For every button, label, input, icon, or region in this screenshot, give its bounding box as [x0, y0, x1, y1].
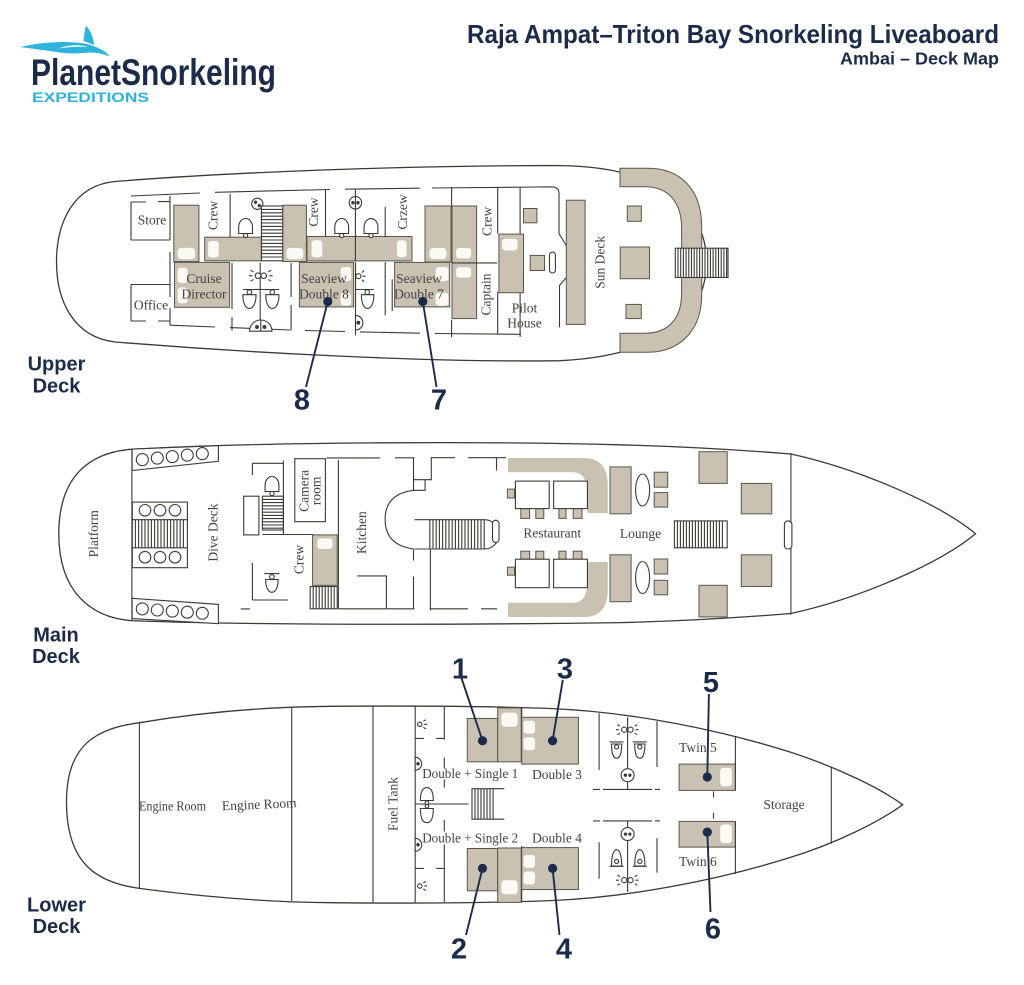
- svg-text:Twin 5: Twin 5: [679, 740, 717, 755]
- svg-text:Double 3: Double 3: [532, 767, 582, 782]
- svg-text:Platform: Platform: [86, 510, 101, 558]
- svg-text:Office: Office: [134, 298, 168, 313]
- svg-text:Crew: Crew: [205, 201, 220, 230]
- svg-text:Deck: Deck: [33, 916, 82, 938]
- svg-text:Crew: Crew: [306, 197, 321, 226]
- svg-text:Raja Ampat–Triton Bay Snorkeli: Raja Ampat–Triton Bay Snorkeling Liveabo…: [467, 19, 999, 49]
- svg-text:3: 3: [557, 654, 573, 686]
- svg-text:2: 2: [451, 934, 467, 966]
- svg-text:Deck: Deck: [33, 376, 82, 398]
- svg-text:Seaview: Seaview: [396, 271, 442, 286]
- svg-text:Main: Main: [33, 625, 79, 647]
- svg-text:5: 5: [703, 667, 719, 699]
- svg-text:Cruise: Cruise: [186, 271, 221, 286]
- svg-text:Double + Single 2: Double + Single 2: [422, 830, 518, 845]
- svg-text:Store: Store: [138, 213, 167, 228]
- svg-text:Ambai – Deck Map: Ambai – Deck Map: [840, 49, 999, 69]
- svg-text:House: House: [507, 316, 542, 331]
- svg-text:Lounge: Lounge: [620, 526, 661, 541]
- svg-text:7: 7: [431, 385, 447, 417]
- svg-text:EXPEDITIONS: EXPEDITIONS: [32, 90, 149, 105]
- svg-text:Twin 6: Twin 6: [679, 854, 717, 869]
- svg-text:Pilot: Pilot: [512, 301, 538, 316]
- svg-text:Restaurant: Restaurant: [523, 526, 581, 541]
- svg-text:4: 4: [556, 934, 572, 966]
- svg-text:Sun Deck: Sun Deck: [593, 236, 608, 289]
- svg-text:Kitchen: Kitchen: [354, 511, 369, 554]
- svg-text:Storage: Storage: [763, 797, 804, 812]
- svg-text:Deck: Deck: [32, 646, 81, 668]
- svg-text:Double 4: Double 4: [532, 830, 582, 845]
- svg-text:Dive Deck: Dive Deck: [205, 503, 220, 561]
- svg-text:1: 1: [452, 654, 468, 686]
- svg-text:Captain: Captain: [479, 273, 494, 315]
- svg-text:Director: Director: [182, 287, 227, 302]
- svg-text:Crew: Crew: [292, 545, 307, 574]
- svg-text:room: room: [309, 476, 324, 505]
- svg-text:Seaview: Seaview: [301, 271, 347, 286]
- svg-text:8: 8: [294, 385, 310, 417]
- svg-text:Fuel Tank: Fuel Tank: [386, 777, 401, 831]
- svg-text:Crzew: Crzew: [395, 194, 410, 229]
- svg-text:Engine Room: Engine Room: [139, 799, 206, 814]
- svg-text:Upper: Upper: [28, 354, 86, 376]
- svg-text:6: 6: [705, 914, 721, 946]
- svg-text:Crew: Crew: [479, 206, 494, 235]
- svg-text:Engine Room: Engine Room: [222, 795, 298, 813]
- svg-text:Lower: Lower: [27, 895, 86, 917]
- svg-text:PlanetSnorkeling: PlanetSnorkeling: [31, 52, 276, 93]
- svg-text:Double + Single 1: Double + Single 1: [422, 766, 518, 781]
